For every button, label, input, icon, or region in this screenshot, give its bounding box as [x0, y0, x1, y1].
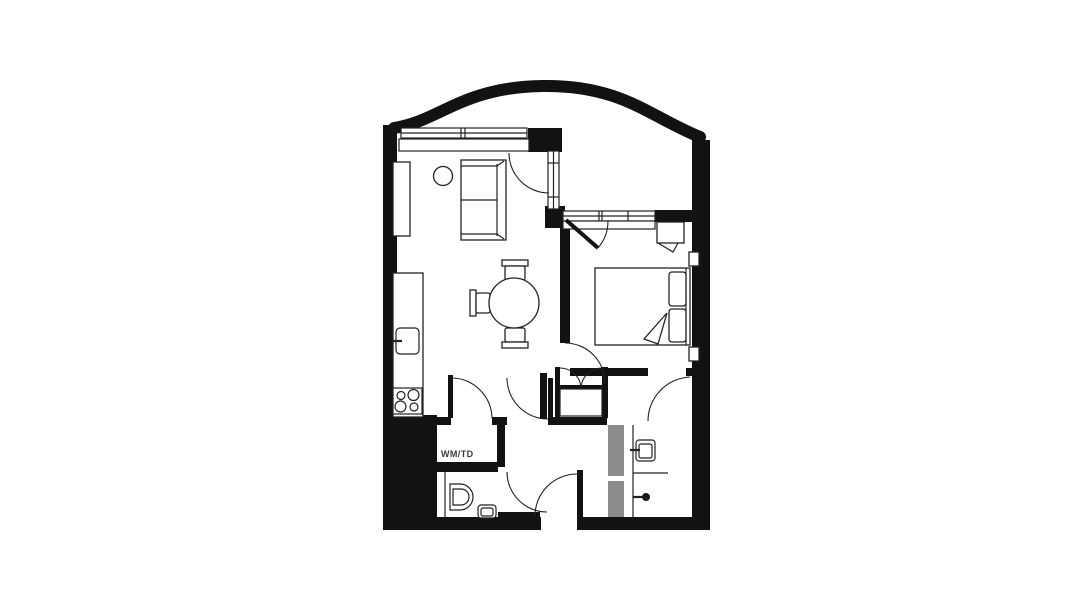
- toilet-icon: [450, 484, 473, 510]
- bathroom-door-swing-icon: [507, 472, 547, 512]
- kitchen: [391, 273, 423, 417]
- utility-label: WM/TD: [441, 449, 474, 459]
- shower-room: [608, 425, 668, 517]
- bedroom-bottom-wall-stub: [686, 368, 692, 376]
- chair-icon: [502, 260, 528, 280]
- living-room-window-icon: [399, 128, 529, 151]
- washbasin-icon: [478, 505, 496, 518]
- bedroom-bottom-wall: [570, 368, 648, 376]
- dining-set: [470, 260, 539, 348]
- bathroom: [445, 472, 496, 518]
- chair-icon: [470, 290, 490, 316]
- bottom-wall-left: [437, 517, 541, 530]
- living-bedroom-divider-wall: [560, 222, 570, 343]
- shelf-unit-icon: [393, 162, 410, 236]
- hall-divider-stub: [540, 373, 547, 419]
- pillow-icon: [669, 309, 686, 342]
- shower-screen: [608, 481, 624, 517]
- bottom-left-wall-mass: [383, 415, 437, 530]
- washbasin-icon: [630, 440, 655, 461]
- chair-icon: [502, 328, 528, 348]
- bedroom-furniture: [595, 222, 699, 361]
- dining-table-icon: [489, 278, 539, 328]
- hall-closet-interior: [560, 389, 602, 416]
- sofa-icon: [461, 160, 506, 240]
- pillow-icon: [669, 272, 686, 306]
- nightstand-icon: [689, 347, 699, 361]
- nightstand-icon: [689, 252, 699, 266]
- living-room-window-sill: [399, 139, 529, 151]
- bottom-wall-right: [577, 517, 710, 530]
- hall-wall-seg-c: [548, 417, 607, 425]
- shower-head-icon: [633, 493, 650, 501]
- terrace-door-swing-icon: [509, 153, 549, 193]
- shower-room-door-swing-icon: [648, 377, 690, 421]
- double-bed-icon: [595, 268, 690, 345]
- entry-door-swing-icon: [535, 474, 577, 516]
- right-wall: [692, 140, 710, 530]
- bedroom-top-right-wall: [655, 210, 692, 222]
- utility-pillar: [497, 420, 505, 467]
- floor-plan-page: WM/TD: [0, 0, 1092, 614]
- stove-icon: [393, 388, 422, 414]
- bathroom-right-wall: [577, 470, 583, 517]
- bedroom-window-icon: [563, 211, 655, 229]
- utility-closet-door-icon: [448, 375, 492, 418]
- side-table-icon: [434, 167, 453, 186]
- living-room-furniture: [393, 160, 506, 240]
- terrace-door-sidelight-icon: [548, 151, 559, 209]
- bathroom-se-wall-nub: [498, 512, 540, 518]
- utility-bottom-wall: [430, 462, 498, 472]
- hall-wall-seg-a: [437, 417, 451, 425]
- shower-screen: [608, 425, 624, 476]
- wardrobe-icon: [657, 222, 684, 252]
- floor-plan-drawing: WM/TD: [0, 0, 1092, 614]
- living-ne-wall-chunk: [528, 128, 562, 152]
- closet-left-wall: [555, 367, 560, 418]
